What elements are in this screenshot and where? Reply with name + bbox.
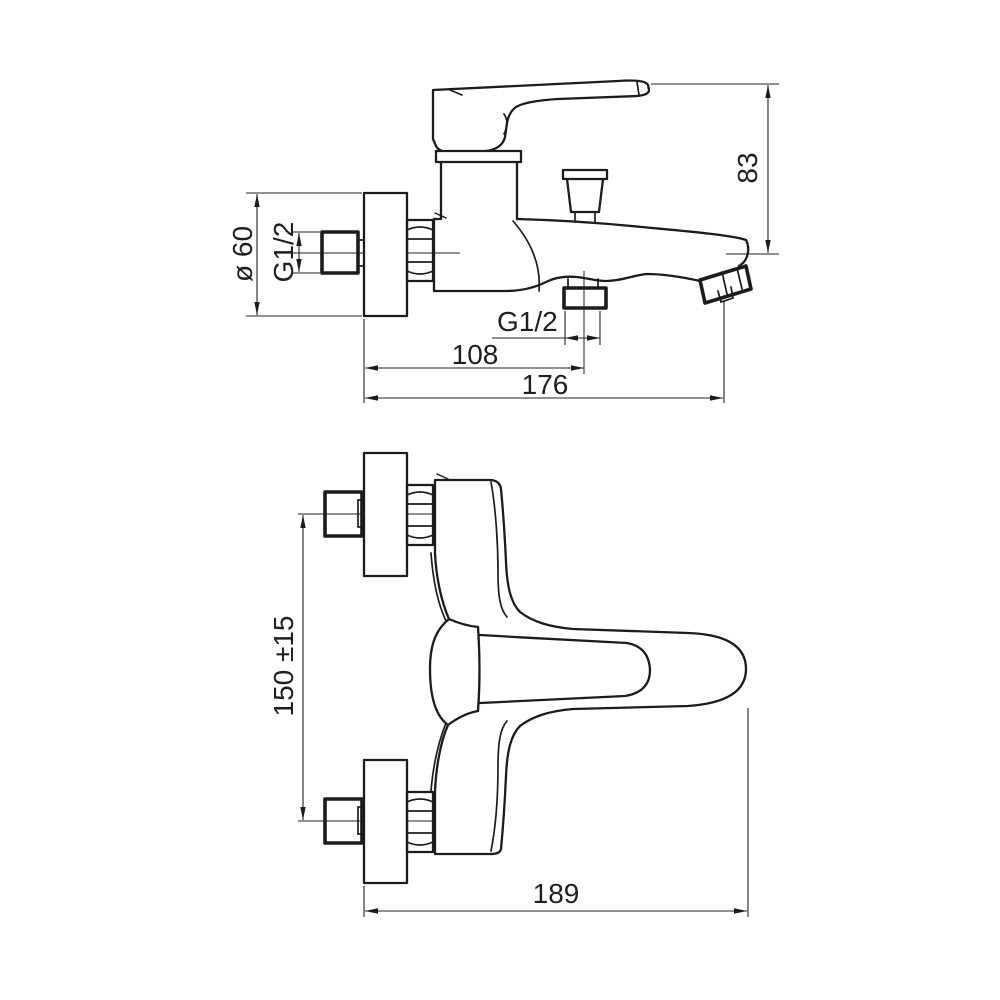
diverter-neck (575, 212, 595, 222)
bottom-nut-chamfers (407, 799, 433, 845)
dim-height-83: 83 (651, 84, 779, 254)
diverter-knob (563, 170, 607, 222)
spout-upper-outline (517, 219, 748, 266)
dim-83-label: 83 (732, 152, 763, 183)
wall-escutcheon (364, 193, 407, 316)
diverter-body (567, 179, 603, 212)
spout-aerator (700, 266, 751, 303)
bottom-escutcheon (364, 760, 407, 883)
body-neck-edges (441, 162, 517, 219)
spout-cone-line (513, 221, 539, 291)
technical-drawing-canvas: ø 60 G1/2 83 G1/2 108 (0, 0, 1000, 1000)
nut-facet-lines (407, 239, 433, 262)
dim-176-label: 176 (522, 369, 569, 400)
dim-centre-distance-150: 150 ±15 (268, 515, 303, 820)
bottom-nut-facets (407, 811, 433, 833)
top-nut-chamfers (407, 492, 433, 538)
handle-outline (433, 81, 649, 154)
dim-189-label: 189 (533, 878, 580, 909)
dim-150-label: 150 ±15 (268, 615, 299, 716)
dim-inlet-thread-label: G1/2 (268, 222, 299, 283)
cartridge-collar (436, 151, 521, 162)
inlet-connection-top (298, 453, 448, 576)
top-body-chamfer-tick (437, 474, 448, 479)
mixer-handle-lever (433, 81, 649, 154)
dim-108-label: 108 (452, 339, 499, 370)
front-view: 150 ±15 189 (268, 453, 748, 917)
dim-inlet-thread: G1/2 (268, 222, 320, 283)
outlet-flange (564, 288, 606, 308)
side-view: ø 60 G1/2 83 G1/2 108 (227, 81, 779, 404)
mounting-nut (407, 220, 433, 281)
drawing-page: ø 60 G1/2 83 G1/2 108 (0, 0, 1000, 1000)
dim-overall-width-189: 189 (364, 708, 748, 917)
nut-chamfer-arcs (407, 227, 433, 274)
dim-outlet-thread-label: G1/2 (497, 306, 558, 337)
top-nut-facets (407, 504, 433, 526)
dim-dia-extension-lines (246, 193, 362, 316)
inlet-connection-bottom (298, 760, 444, 883)
top-escutcheon (364, 453, 407, 576)
diverter-cap (563, 170, 607, 179)
dim-dia-label: ø 60 (227, 226, 258, 282)
dim-outlet-extension-lines (565, 311, 600, 345)
body-silhouette (430, 480, 746, 854)
